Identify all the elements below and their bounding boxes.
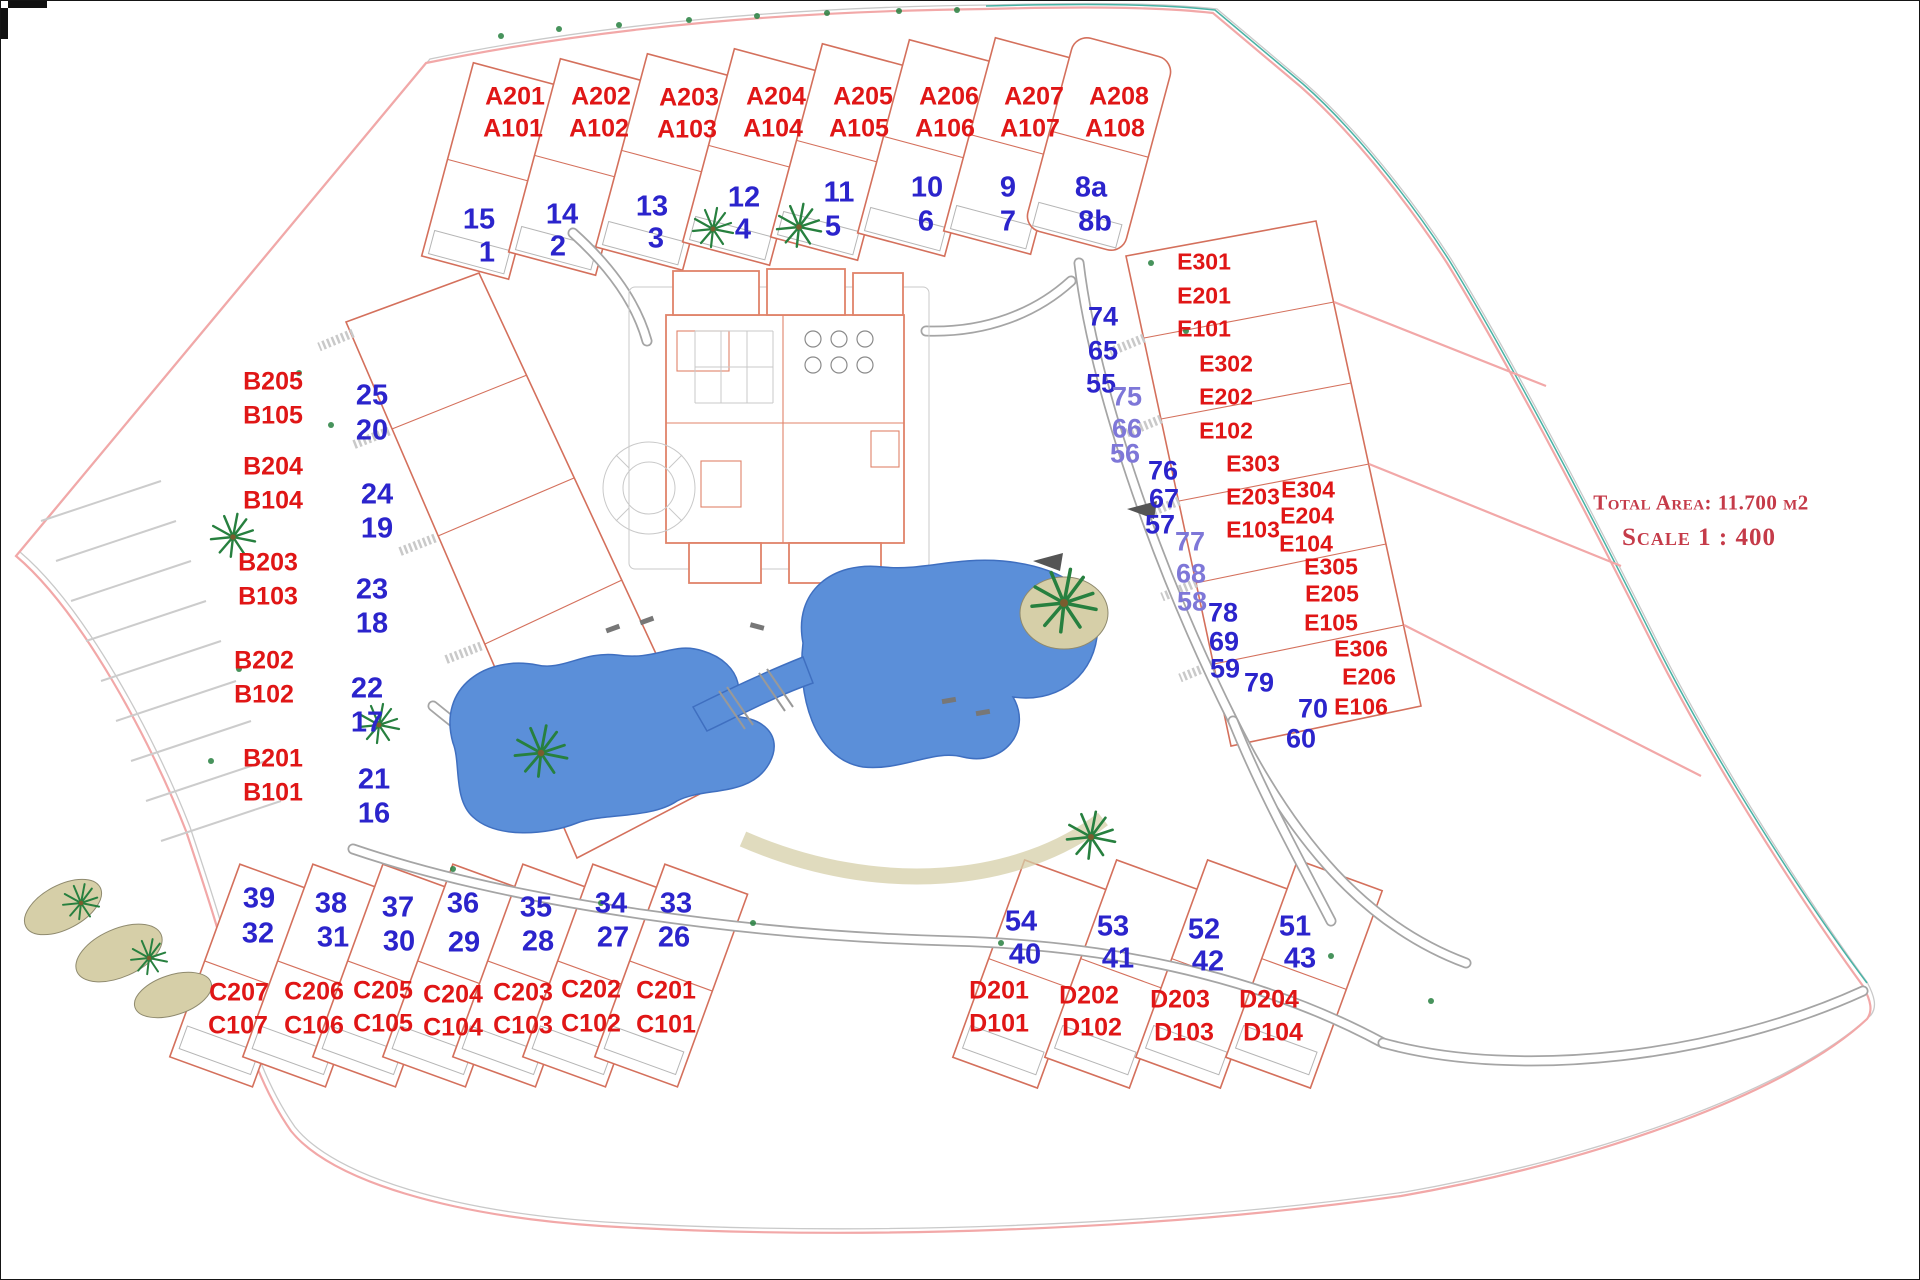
unit-label-d: D103 [1154,1021,1214,1046]
unit-label-c: C104 [423,1016,483,1041]
frame-corner [1,1,47,39]
plot-number-c: 28 [522,928,554,957]
unit-label-b: B202 [234,649,294,674]
plot-number-a: 5 [825,213,841,242]
unit-label-d: D204 [1239,988,1299,1013]
unit-label-e: E104 [1279,533,1333,556]
plot-number-e: 74 [1088,304,1118,331]
site-plan-drawing [1,1,1920,1280]
unit-label-c: C206 [284,980,344,1005]
plot-number-d: 40 [1009,941,1041,970]
unit-label-e: E301 [1177,251,1231,274]
plot-number-e: 70 [1298,696,1328,723]
unit-label-b: B105 [243,404,303,429]
unit-label-a: A101 [483,117,543,142]
plot-number-e: 68 [1176,561,1206,588]
left-pool [450,648,774,833]
unit-label-a: A202 [571,85,631,110]
unit-label-e: E201 [1177,285,1231,308]
plot-number-c: 38 [315,890,347,919]
unit-label-b: B102 [234,683,294,708]
unit-label-a: A203 [659,86,719,111]
unit-label-b: B101 [243,781,303,806]
plot-number-e: 76 [1148,458,1178,485]
plot-number-a: 7 [1000,208,1016,237]
unit-label-e: E102 [1199,420,1253,443]
unit-label-e: E203 [1226,486,1280,509]
unit-label-e: E103 [1226,519,1280,542]
plot-number-a: 10 [911,174,943,203]
unit-label-a: A104 [743,117,803,142]
unit-label-e: E202 [1199,386,1253,409]
total-area-text: Total Area: 11.700 м2 [1593,491,1809,516]
unit-label-c: C102 [561,1012,621,1037]
plot-number-b: 18 [356,610,388,639]
unit-label-e: E206 [1342,666,1396,689]
plot-number-e: 79 [1244,670,1274,697]
unit-label-d: D102 [1062,1016,1122,1041]
plot-number-c: 39 [243,885,275,914]
unit-label-a: A206 [919,85,979,110]
unit-label-b: B203 [238,551,298,576]
plot-number-c: 27 [597,924,629,953]
unit-label-a: A204 [746,85,806,110]
plot-number-a: 14 [546,201,578,230]
plot-number-a: 11 [824,179,855,208]
landscaping [16,868,218,1027]
plot-number-d: 54 [1005,908,1037,937]
unit-label-a: A205 [833,85,893,110]
unit-label-a: A102 [569,117,629,142]
unit-label-d: D104 [1243,1021,1303,1046]
plot-number-a: 6 [918,208,934,237]
unit-label-e: E306 [1334,638,1388,661]
unit-label-e: E303 [1226,453,1280,476]
plot-number-b: 16 [358,800,390,829]
plot-number-e: 58 [1177,589,1207,616]
unit-label-c: C107 [208,1014,268,1039]
plot-number-a: 2 [550,233,566,262]
unit-label-d: D202 [1059,984,1119,1009]
plot-number-a: 4 [735,216,751,245]
plot-number-c: 26 [658,924,690,953]
plot-number-c: 34 [595,890,627,919]
unit-label-a: A208 [1089,85,1149,110]
unit-label-d: D203 [1150,988,1210,1013]
plot-number-e: 78 [1208,600,1238,627]
unit-label-c: C103 [493,1014,553,1039]
unit-label-c: C106 [284,1014,344,1039]
unit-label-c: C207 [209,981,269,1006]
clubhouse [603,269,929,583]
plot-number-d: 43 [1284,945,1316,974]
unit-label-e: E101 [1177,318,1231,341]
unit-label-e: E302 [1199,353,1253,376]
unit-label-a: A201 [485,85,545,110]
direction-arrows [1033,501,1157,571]
unit-label-a: A207 [1004,85,1064,110]
plot-number-b: 23 [356,576,388,605]
plot-number-a: 15 [463,206,495,235]
unit-label-c: C203 [493,981,553,1006]
plot-number-e: 60 [1286,726,1316,753]
unit-label-b: B204 [243,455,303,480]
plot-number-c: 30 [383,928,415,957]
unit-label-e: E105 [1304,612,1358,635]
unit-label-a: A106 [915,117,975,142]
plot-number-a: 1 [479,239,495,268]
unit-label-b: B201 [243,747,303,772]
unit-label-a: A108 [1085,117,1145,142]
plot-number-b: 19 [361,515,393,544]
plot-number-e: 57 [1145,512,1175,539]
plot-number-b: 20 [356,417,388,446]
unit-label-d: D101 [969,1012,1029,1037]
unit-label-e: E304 [1281,479,1335,502]
plot-number-d: 42 [1192,948,1224,977]
plot-number-a: 8a [1075,174,1107,203]
unit-label-c: C205 [353,979,413,1004]
plot-number-d: 51 [1279,913,1311,942]
plot-number-e: 69 [1209,629,1239,656]
plot-number-c: 35 [520,894,552,923]
unit-label-b: B103 [238,585,298,610]
plot-number-d: 53 [1097,913,1129,942]
plot-number-a: 8b [1078,208,1112,237]
plot-number-a: 12 [728,184,760,213]
plot-number-d: 41 [1102,945,1134,974]
unit-label-c: C204 [423,983,483,1008]
plot-number-e: 75 [1112,384,1142,411]
plot-number-c: 31 [317,924,349,953]
plot-number-c: 33 [660,890,692,919]
plot-number-a: 3 [648,225,664,254]
scale-text: Scale 1 : 400 [1622,524,1776,552]
unit-label-c: C105 [353,1012,413,1037]
unit-label-b: B104 [243,489,303,514]
unit-label-d: D201 [969,979,1029,1004]
plot-number-c: 32 [242,920,274,949]
unit-label-c: C101 [636,1013,696,1038]
plot-number-b: 17 [351,709,383,738]
unit-label-a: A103 [657,118,717,143]
plot-number-b: 24 [361,481,393,510]
plot-number-e: 65 [1088,338,1118,365]
plot-number-e: 77 [1175,529,1205,556]
unit-label-a: A105 [829,117,889,142]
unit-label-e: E106 [1334,696,1388,719]
plot-number-b: 22 [351,675,383,704]
site-plan: A201 A202 A203 A204 A205 A206 A207 A208 … [0,0,1920,1280]
plot-number-a: 9 [1000,174,1016,203]
plot-number-d: 52 [1188,916,1220,945]
plot-number-c: 29 [448,929,480,958]
unit-label-e: E204 [1280,505,1334,528]
plot-number-e: 59 [1210,656,1240,683]
plot-number-e: 67 [1149,486,1179,513]
plot-number-b: 25 [356,382,388,411]
unit-label-a: A107 [1000,117,1060,142]
unit-label-e: E305 [1304,556,1358,579]
plot-number-a: 13 [636,193,668,222]
plot-number-c: 37 [382,894,414,923]
plot-number-b: 21 [358,766,390,795]
plot-number-c: 36 [447,890,479,919]
unit-label-c: C201 [636,979,696,1004]
plot-number-e: 56 [1110,441,1140,468]
unit-label-c: C202 [561,978,621,1003]
unit-label-e: E205 [1305,583,1359,606]
unit-label-b: B205 [243,370,303,395]
